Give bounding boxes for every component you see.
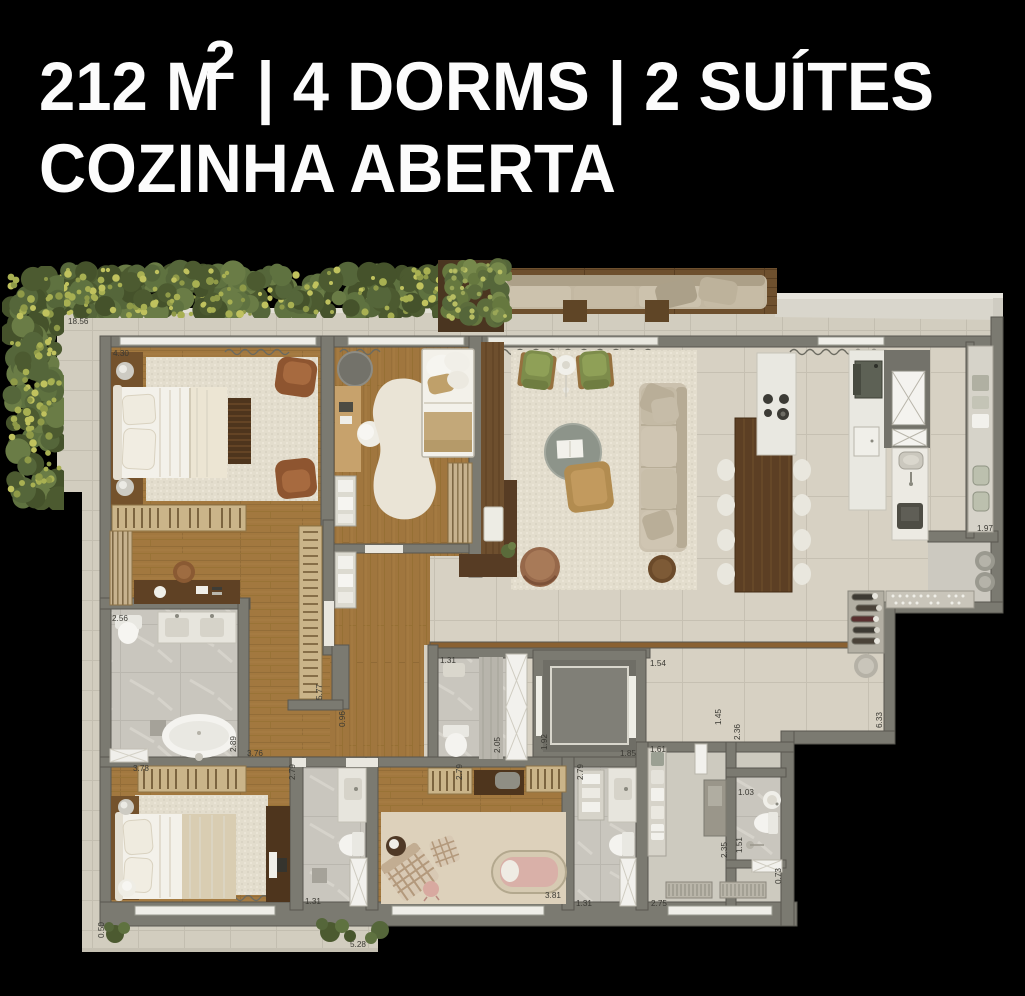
svg-text:1.61: 1.61 — [650, 745, 666, 754]
svg-text:6.33: 6.33 — [875, 712, 884, 728]
svg-text:1.97: 1.97 — [977, 524, 993, 533]
svg-text:1.54: 1.54 — [650, 659, 666, 668]
svg-text:0.96: 0.96 — [338, 711, 347, 727]
svg-text:1.85: 1.85 — [620, 749, 636, 758]
svg-text:0.73: 0.73 — [774, 868, 783, 884]
svg-text:0.50: 0.50 — [97, 922, 106, 938]
svg-text:18.56: 18.56 — [68, 317, 89, 326]
svg-text:1.31: 1.31 — [440, 656, 456, 665]
svg-text:4.30: 4.30 — [113, 349, 129, 358]
svg-text:1.31: 1.31 — [305, 897, 321, 906]
svg-text:2.79: 2.79 — [576, 764, 585, 780]
svg-text:3.76: 3.76 — [247, 749, 263, 758]
svg-text:5.77: 5.77 — [315, 684, 324, 700]
svg-text:1.31: 1.31 — [576, 899, 592, 908]
svg-text:2.56: 2.56 — [112, 614, 128, 623]
svg-text:1.45: 1.45 — [714, 709, 723, 725]
svg-text:1.92: 1.92 — [540, 734, 549, 750]
svg-text:2.79: 2.79 — [288, 764, 297, 780]
svg-text:3.78: 3.78 — [133, 764, 149, 773]
svg-text:2.79: 2.79 — [455, 764, 464, 780]
svg-text:2.75: 2.75 — [651, 899, 667, 908]
svg-text:2.36: 2.36 — [733, 724, 742, 740]
svg-text:2.05: 2.05 — [493, 737, 502, 753]
svg-text:1.03: 1.03 — [738, 788, 754, 797]
svg-text:1.51: 1.51 — [735, 837, 744, 853]
svg-text:3.81: 3.81 — [545, 891, 561, 900]
svg-text:2.89: 2.89 — [229, 736, 238, 752]
svg-text:2.35: 2.35 — [720, 842, 729, 858]
